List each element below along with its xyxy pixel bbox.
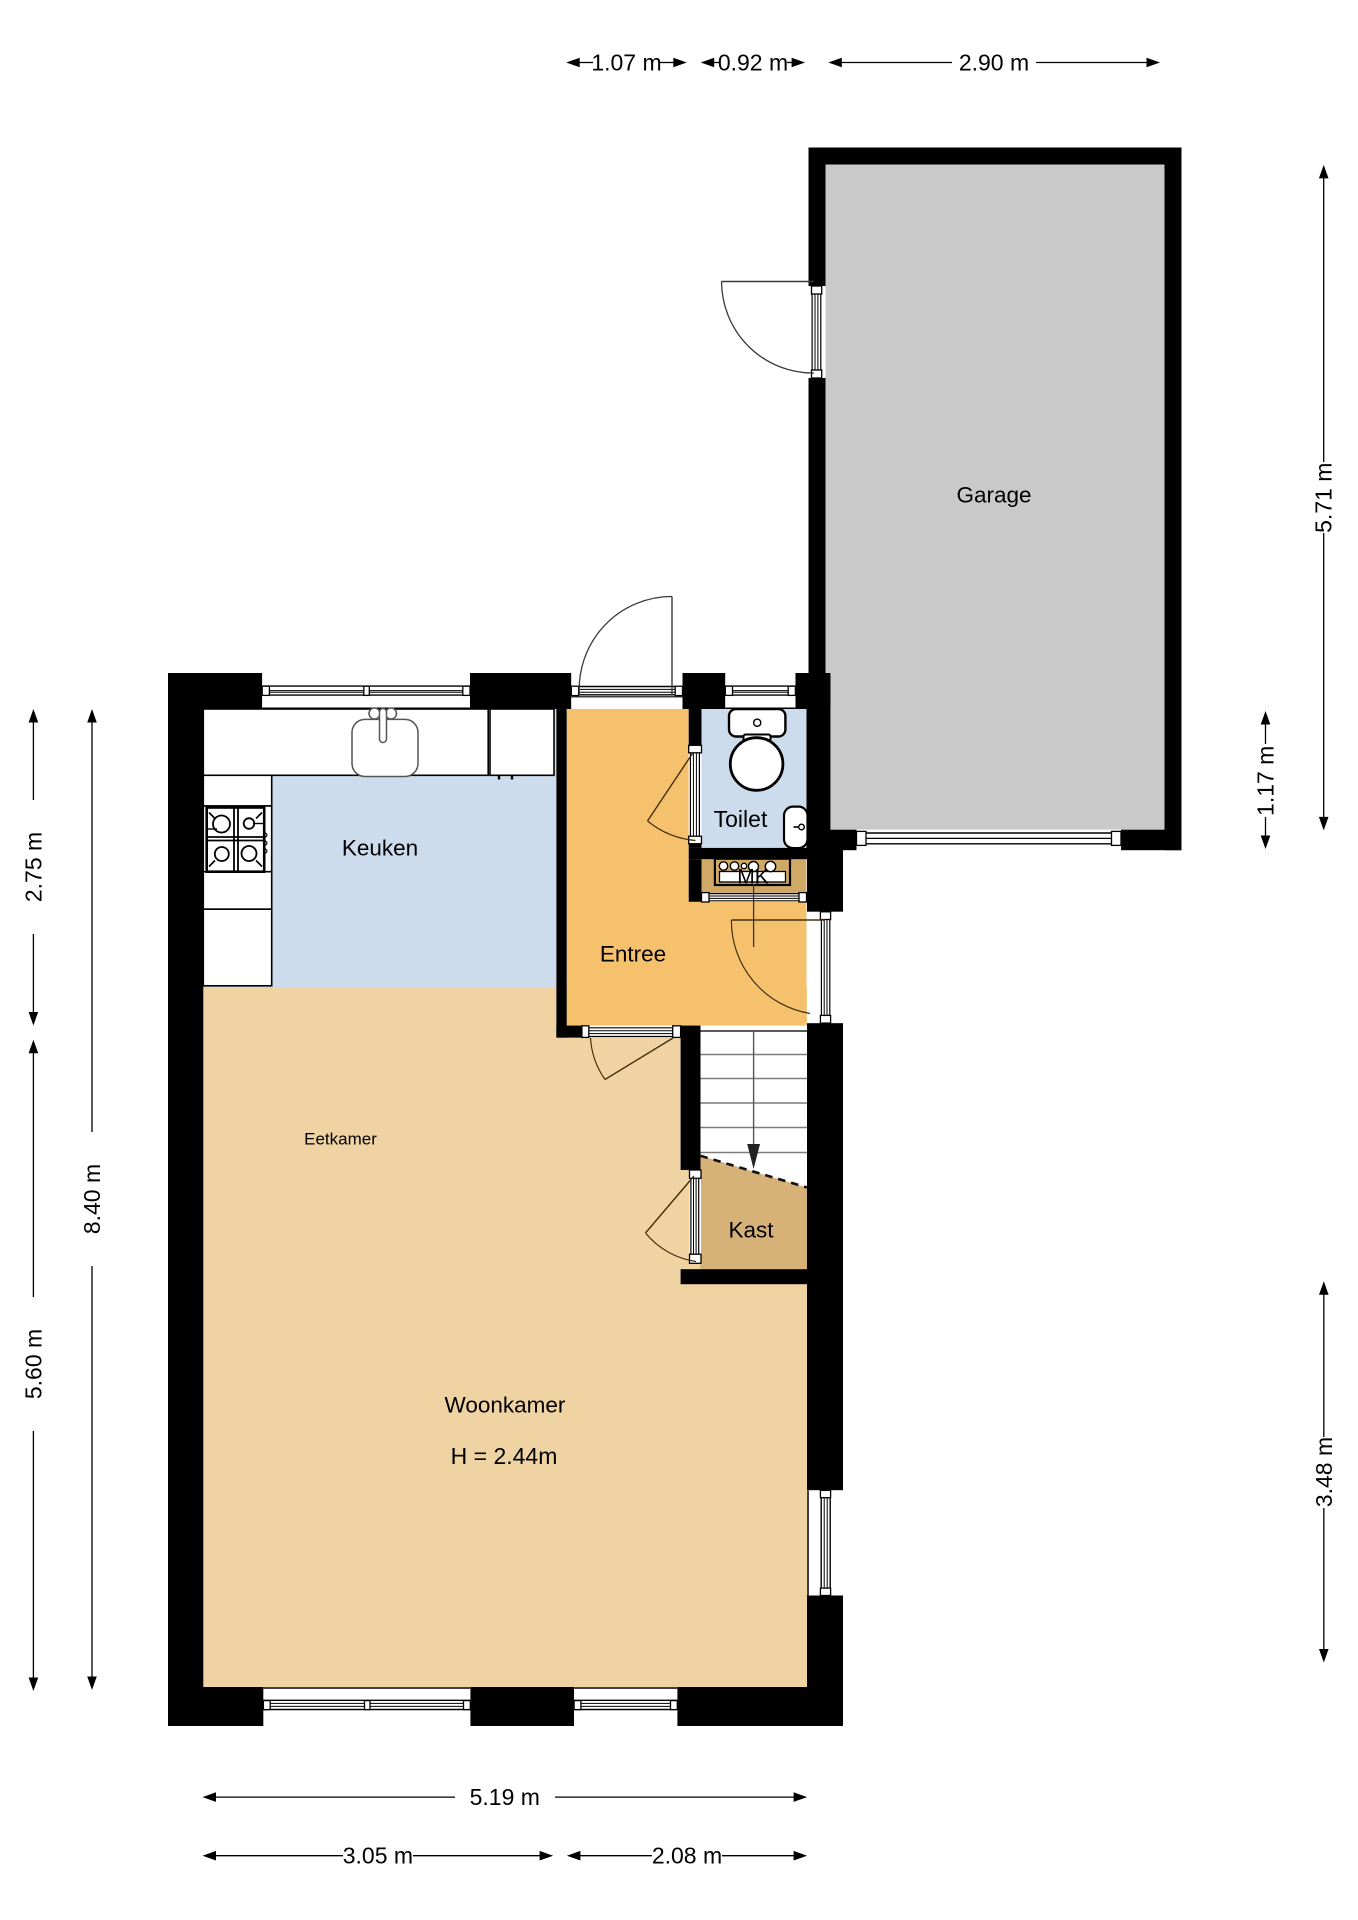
svg-text:Garage: Garage: [956, 483, 1031, 508]
svg-text:Kast: Kast: [728, 1218, 774, 1243]
svg-text:1.07 m: 1.07 m: [591, 50, 661, 76]
svg-text:Woonkamer: Woonkamer: [445, 1393, 566, 1418]
svg-text:3.05 m: 3.05 m: [343, 1843, 413, 1869]
svg-text:8.40 m: 8.40 m: [79, 1164, 105, 1234]
svg-text:5.71 m: 5.71 m: [1311, 463, 1337, 533]
svg-text:2.08 m: 2.08 m: [652, 1843, 722, 1869]
svg-text:5.19 m: 5.19 m: [470, 1784, 540, 1810]
svg-text:0.92 m: 0.92 m: [718, 50, 788, 76]
svg-text:Entree: Entree: [600, 942, 666, 967]
svg-text:MK: MK: [737, 866, 769, 889]
svg-text:Keuken: Keuken: [342, 836, 418, 861]
svg-text:2.75 m: 2.75 m: [20, 832, 46, 902]
svg-text:Toilet: Toilet: [714, 806, 768, 832]
svg-text:5.60 m: 5.60 m: [20, 1329, 46, 1399]
svg-text:2.90 m: 2.90 m: [959, 50, 1029, 76]
svg-text:Eetkamer: Eetkamer: [304, 1130, 377, 1149]
svg-text:H = 2.44m: H = 2.44m: [451, 1443, 558, 1469]
svg-text:3.48 m: 3.48 m: [1311, 1437, 1337, 1507]
svg-text:1.17 m: 1.17 m: [1253, 746, 1279, 816]
